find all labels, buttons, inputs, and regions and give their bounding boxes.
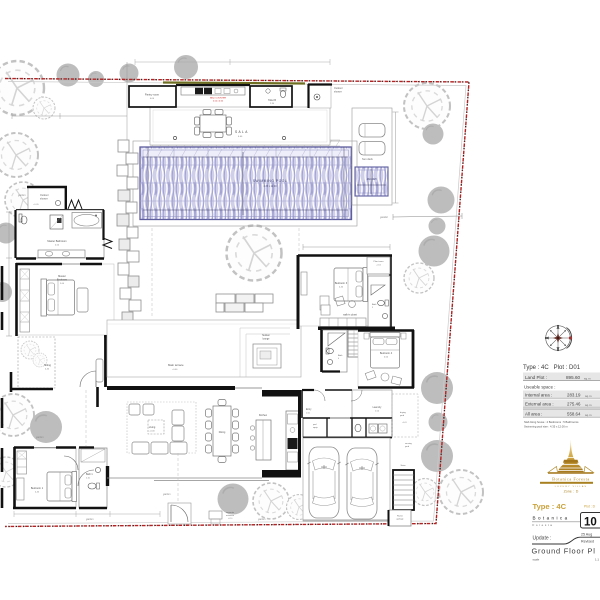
svg-text:Master: Master <box>58 275 66 278</box>
svg-text:+0.00: +0.00 <box>149 431 155 433</box>
svg-text:separate: separate <box>226 511 235 514</box>
svg-text:Update :: Update : <box>533 536 552 542</box>
svg-text:Ground Floor Pl: Ground Floor Pl <box>532 547 596 556</box>
svg-text:25 Aug: 25 Aug <box>581 533 592 537</box>
svg-text:shower: shower <box>40 197 48 200</box>
svg-text:scale: scale <box>533 558 540 562</box>
svg-text:Bedroom 1: Bedroom 1 <box>31 487 44 490</box>
svg-text:Botanica: Botanica <box>533 516 570 521</box>
svg-text:283.19: 283.19 <box>567 393 581 398</box>
svg-text:Toilet B: Toilet B <box>268 99 276 102</box>
svg-text:895.60: 895.60 <box>566 375 580 380</box>
svg-text:1:1: 1:1 <box>595 558 599 562</box>
svg-text:garbage: garbage <box>397 518 404 521</box>
svg-text:Master Bathroom: Master Bathroom <box>47 240 66 243</box>
svg-text:garden: garden <box>380 215 389 219</box>
svg-text:Bedroom 3: Bedroom 3 <box>335 282 348 285</box>
svg-text:Foresta: Foresta <box>533 523 554 527</box>
svg-text:walk-in closet: walk-in closet <box>343 314 357 317</box>
svg-text:shower: shower <box>334 90 342 93</box>
svg-text:lounge: lounge <box>263 338 271 340</box>
svg-text:-0.10: -0.10 <box>228 518 232 520</box>
svg-text:4.00 x 0.60: 4.00 x 0.60 <box>213 101 224 103</box>
svg-text:entrance: entrance <box>226 514 235 517</box>
svg-text:+0.00: +0.00 <box>172 369 178 371</box>
svg-text:equip: equip <box>313 427 318 429</box>
svg-text:JACUZZI: JACUZZI <box>367 178 377 181</box>
svg-text:Internal area :: Internal area : <box>525 393 552 398</box>
svg-text:pool: pool <box>313 424 317 426</box>
svg-text:+0.05: +0.05 <box>33 204 39 206</box>
svg-text:Zone : D: Zone : D <box>564 490 579 494</box>
svg-text:Plant area: Plant area <box>374 260 385 263</box>
svg-text:Dining: Dining <box>219 432 226 434</box>
svg-text:Stairs: Stairs <box>400 464 405 467</box>
svg-text:garden: garden <box>163 493 171 496</box>
svg-text:sq.m: sq.m <box>585 394 592 398</box>
svg-text:3: 3 <box>372 307 373 309</box>
svg-text:Main terrace: Main terrace <box>168 363 184 367</box>
svg-text:Pantry room: Pantry room <box>145 93 159 97</box>
svg-text:All area :: All area : <box>525 412 542 417</box>
svg-text:garden: garden <box>18 194 26 197</box>
svg-text:SWIMMING POOL: SWIMMING POOL <box>253 179 288 183</box>
svg-text:garden: garden <box>258 518 266 521</box>
svg-text:Botanica Foresta: Botanica Foresta <box>552 477 590 482</box>
svg-text:Living: Living <box>149 426 156 429</box>
svg-text:Bedroom 4: Bedroom 4 <box>380 352 393 355</box>
svg-text:LUXURY VILLAS: LUXURY VILLAS <box>555 485 587 488</box>
svg-text:558.64: 558.64 <box>567 412 581 417</box>
svg-text:BBQ COUNTER: BBQ COUNTER <box>210 98 226 100</box>
svg-text:Kitchen: Kitchen <box>259 414 268 417</box>
svg-text:SALA: SALA <box>235 130 249 134</box>
svg-text:275.46: 275.46 <box>567 402 581 407</box>
svg-text:garden: garden <box>36 436 44 439</box>
svg-text:4.35 x 12.00: 4.35 x 12.00 <box>263 185 277 188</box>
svg-text:Plot : D: Plot : D <box>584 505 596 509</box>
svg-text:+0.05: +0.05 <box>402 422 407 424</box>
svg-text:garden: garden <box>86 518 94 521</box>
svg-text:Entry: Entry <box>306 408 312 411</box>
svg-text:4: 4 <box>338 358 339 360</box>
svg-text:serving: serving <box>405 442 413 445</box>
svg-text:Sunken: Sunken <box>262 335 271 337</box>
svg-text:External area :: External area : <box>525 402 554 407</box>
svg-text:10: 10 <box>584 517 597 529</box>
svg-text:+0.05: +0.05 <box>376 264 381 266</box>
svg-text:sq.m: sq.m <box>585 413 592 417</box>
svg-text:sq.m: sq.m <box>585 403 592 407</box>
svg-text:drying: drying <box>400 411 407 414</box>
svg-text:Revised: Revised <box>581 540 594 544</box>
svg-text:Slab living house : 4 Bedrooms: Slab living house : 4 Bedrooms : 5 Bathr… <box>524 420 579 424</box>
svg-text:Laundry: Laundry <box>373 406 382 409</box>
svg-text:Planter: Planter <box>397 515 403 518</box>
svg-text:Useable space :: Useable space : <box>524 385 556 390</box>
svg-text:sq.m: sq.m <box>584 377 591 381</box>
svg-text:Type : 4C: Type : 4C <box>533 502 567 511</box>
svg-text:Swimming pool size : 4.35 x 12: Swimming pool size : 4.35 x 12.00 m <box>524 424 569 428</box>
svg-text:Sitting: Sitting <box>44 364 52 367</box>
svg-text:Land Plot :: Land Plot : <box>525 375 547 380</box>
svg-text:Sun deck: Sun deck <box>362 157 374 161</box>
svg-text:Bath 1: Bath 1 <box>86 473 93 476</box>
svg-text:Bedroom: Bedroom <box>57 279 67 282</box>
svg-text:Type : 4C Plot : D01: Type : 4C Plot : D01 <box>523 365 581 371</box>
